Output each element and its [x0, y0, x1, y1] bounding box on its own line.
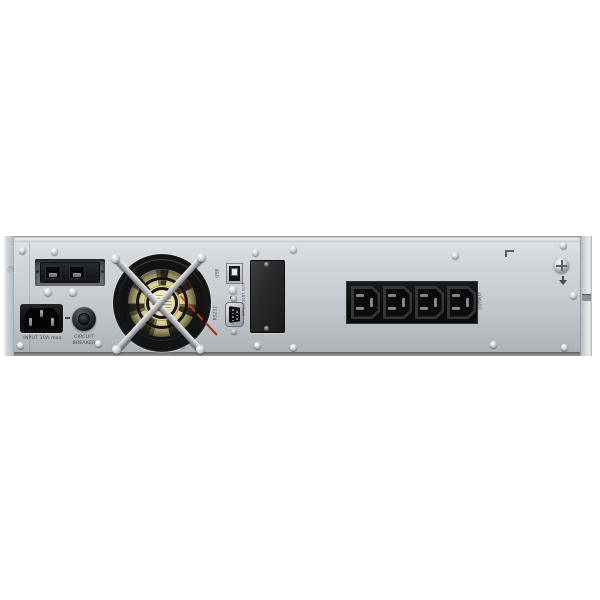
fan-screw: [112, 345, 121, 354]
outlet-slot: [420, 307, 428, 310]
slot-screw: [264, 262, 269, 267]
outlet-slot: [388, 294, 396, 297]
power-outlet-recess: [386, 289, 410, 317]
usb-label: USB: [216, 266, 220, 277]
power-outlet: [415, 286, 444, 319]
breaker-dash-mark: [65, 317, 70, 319]
screw: [290, 344, 297, 351]
screw: [290, 246, 297, 253]
outlet-slot: [466, 298, 469, 307]
rack-ear-notch: [582, 294, 591, 302]
ground-symbol-arrow: [559, 280, 567, 285]
battery-connector: [40, 262, 100, 283]
serial-pin: [236, 311, 238, 313]
serial-port-dshell: [229, 306, 240, 323]
serial-jack-screw: [231, 329, 237, 334]
serial-pin: [232, 320, 234, 322]
rack-ear-hole: [7, 266, 14, 273]
screw: [17, 342, 24, 349]
serial-pin: [232, 323, 234, 325]
screw: [254, 342, 261, 349]
usb-port-inner: [229, 266, 240, 281]
outlet-slot: [452, 307, 460, 310]
ground-screw: [554, 258, 569, 273]
ac-inlet: [20, 304, 63, 333]
inlet-pin-earth: [40, 310, 43, 317]
outlet-slot: [420, 294, 428, 297]
serial-pin: [232, 316, 234, 318]
rack-ear-left: [4, 236, 14, 356]
power-outlet-recess: [450, 289, 474, 317]
serial-pin: [232, 309, 234, 311]
inlet-pin-live: [29, 318, 32, 326]
chassis-bottom-edge: [4, 352, 592, 356]
circuit-breaker-button: [78, 313, 90, 325]
screw: [252, 249, 259, 256]
outlet-slot: [434, 298, 437, 307]
fan-screw: [111, 254, 120, 263]
outlet-slot: [370, 298, 373, 307]
power-outlet-recess: [418, 289, 442, 317]
circuit-breaker-label-line1: CIRCUIT: [74, 334, 94, 339]
battery-connector-slot: [45, 266, 61, 279]
serial-pin: [236, 315, 238, 317]
outlet-slot: [452, 294, 460, 297]
usb-port: [226, 263, 243, 284]
serial-pin: [232, 313, 234, 315]
serial-pin: [236, 318, 238, 320]
intelligent-slot-label: INTELLIGENT SLOT: [242, 292, 245, 316]
screw: [452, 252, 459, 259]
serial-jack-screw: [231, 296, 237, 301]
battery-connector-slot: [69, 266, 85, 279]
circuit-breaker-label-line2: BREAKER: [72, 340, 95, 345]
screw: [570, 292, 577, 299]
rivet: [229, 286, 237, 294]
outlet-slot: [402, 298, 405, 307]
screw: [490, 341, 497, 348]
outlet-panel: [346, 281, 478, 324]
fan-screw: [197, 253, 206, 262]
corner-mark: [505, 250, 514, 257]
power-outlet: [447, 286, 476, 319]
output-label: OUTPUT: [479, 296, 483, 310]
inlet-pin-neutral: [51, 318, 54, 326]
power-outlet: [383, 286, 412, 319]
product-photo: INPUT 10A max. CIRCUIT BREAKER USB RS232: [0, 0, 600, 600]
screw: [561, 344, 568, 351]
connector-screw: [36, 270, 39, 273]
rivet: [69, 288, 77, 296]
connector-screw: [101, 270, 104, 273]
slot-screw: [264, 326, 269, 331]
usb-port-tongue: [231, 268, 238, 276]
rivet: [44, 288, 52, 296]
serial-pin: [236, 322, 238, 324]
fan-screw: [196, 345, 205, 354]
screw: [51, 248, 58, 255]
intelligent-slot-cover: [250, 260, 285, 333]
circuit-breaker: [72, 307, 96, 331]
ground-symbol: [556, 276, 570, 286]
input-label: INPUT 10A max.: [23, 335, 60, 341]
power-outlet: [351, 286, 380, 319]
outlet-slot: [388, 307, 396, 310]
power-outlet-recess: [354, 289, 378, 317]
screw: [560, 242, 567, 249]
outlet-slot: [356, 294, 364, 297]
screw: [19, 247, 26, 254]
serial-label: RS232: [214, 308, 218, 321]
circuit-breaker-label: CIRCUIT BREAKER: [67, 334, 101, 346]
outlet-slot: [356, 307, 364, 310]
